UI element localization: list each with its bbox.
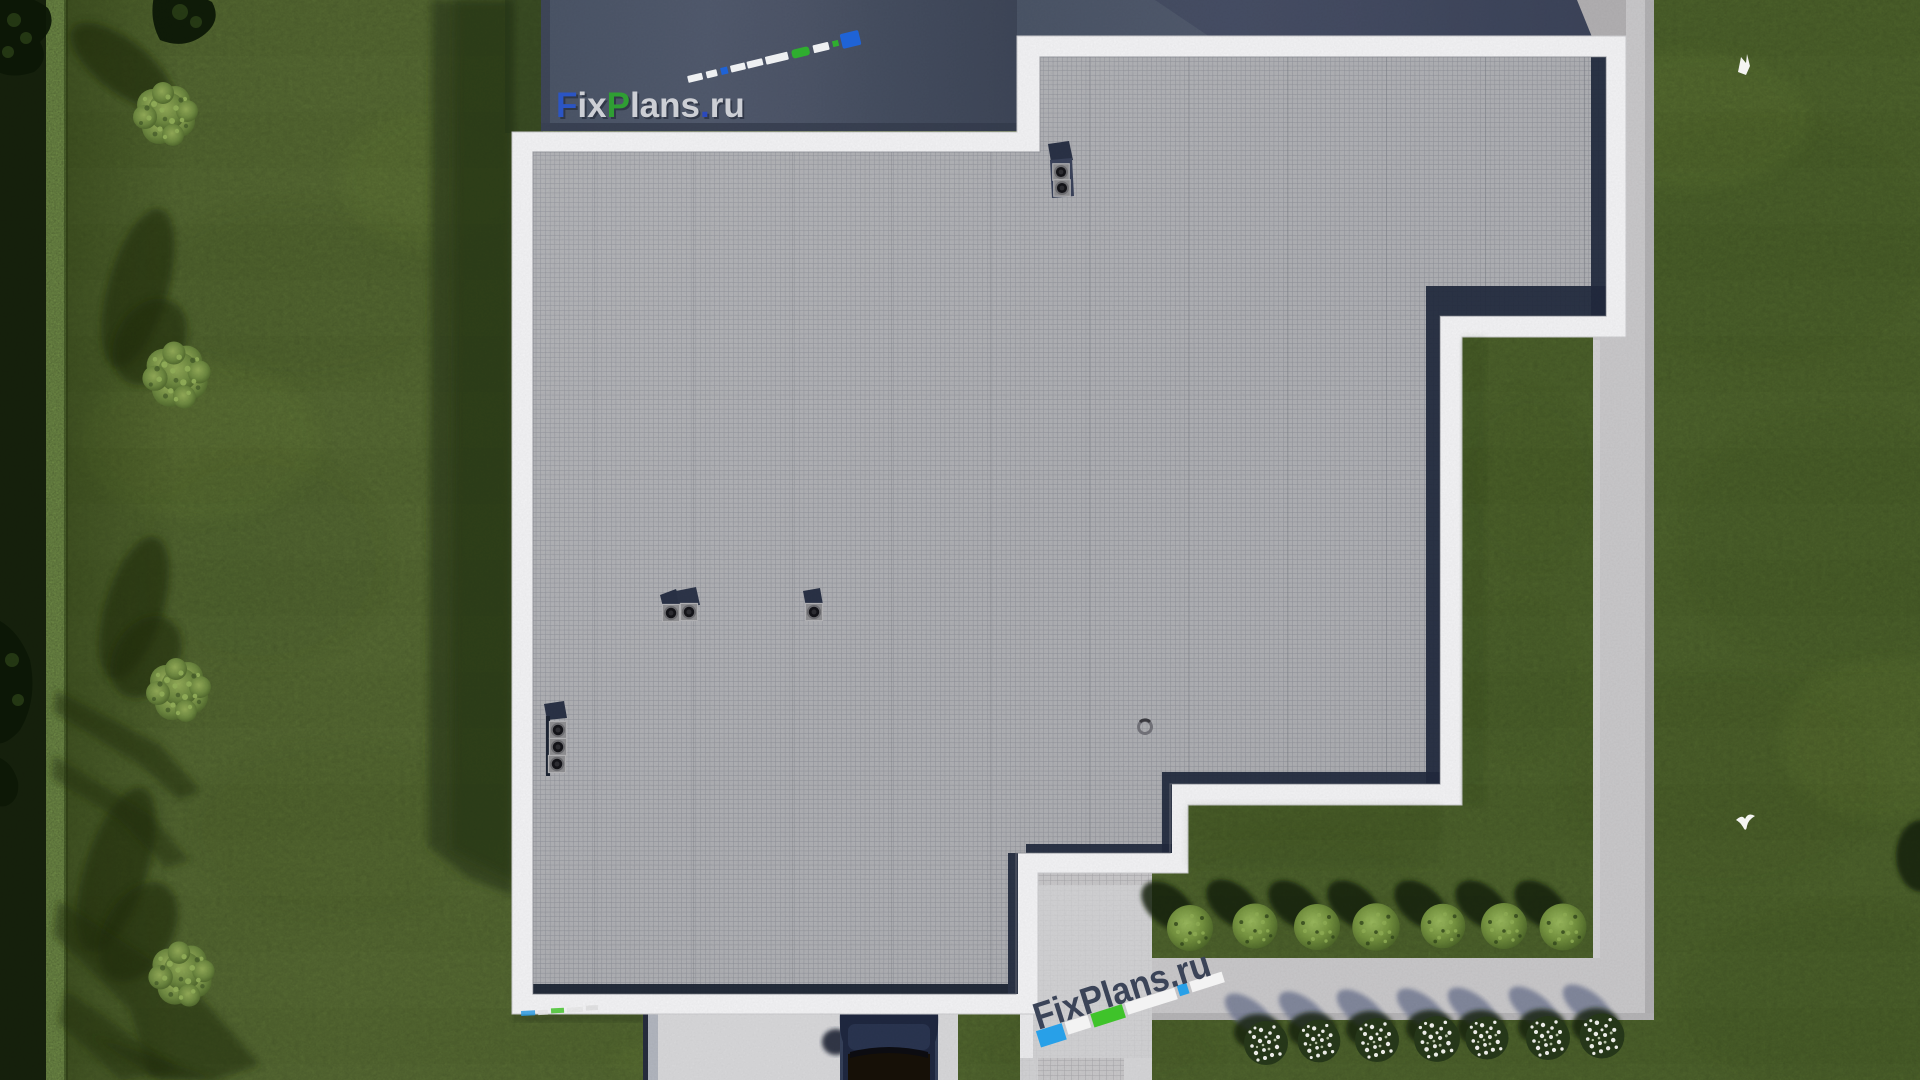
svg-text:FixPlans.ru: FixPlans.ru <box>556 86 745 125</box>
